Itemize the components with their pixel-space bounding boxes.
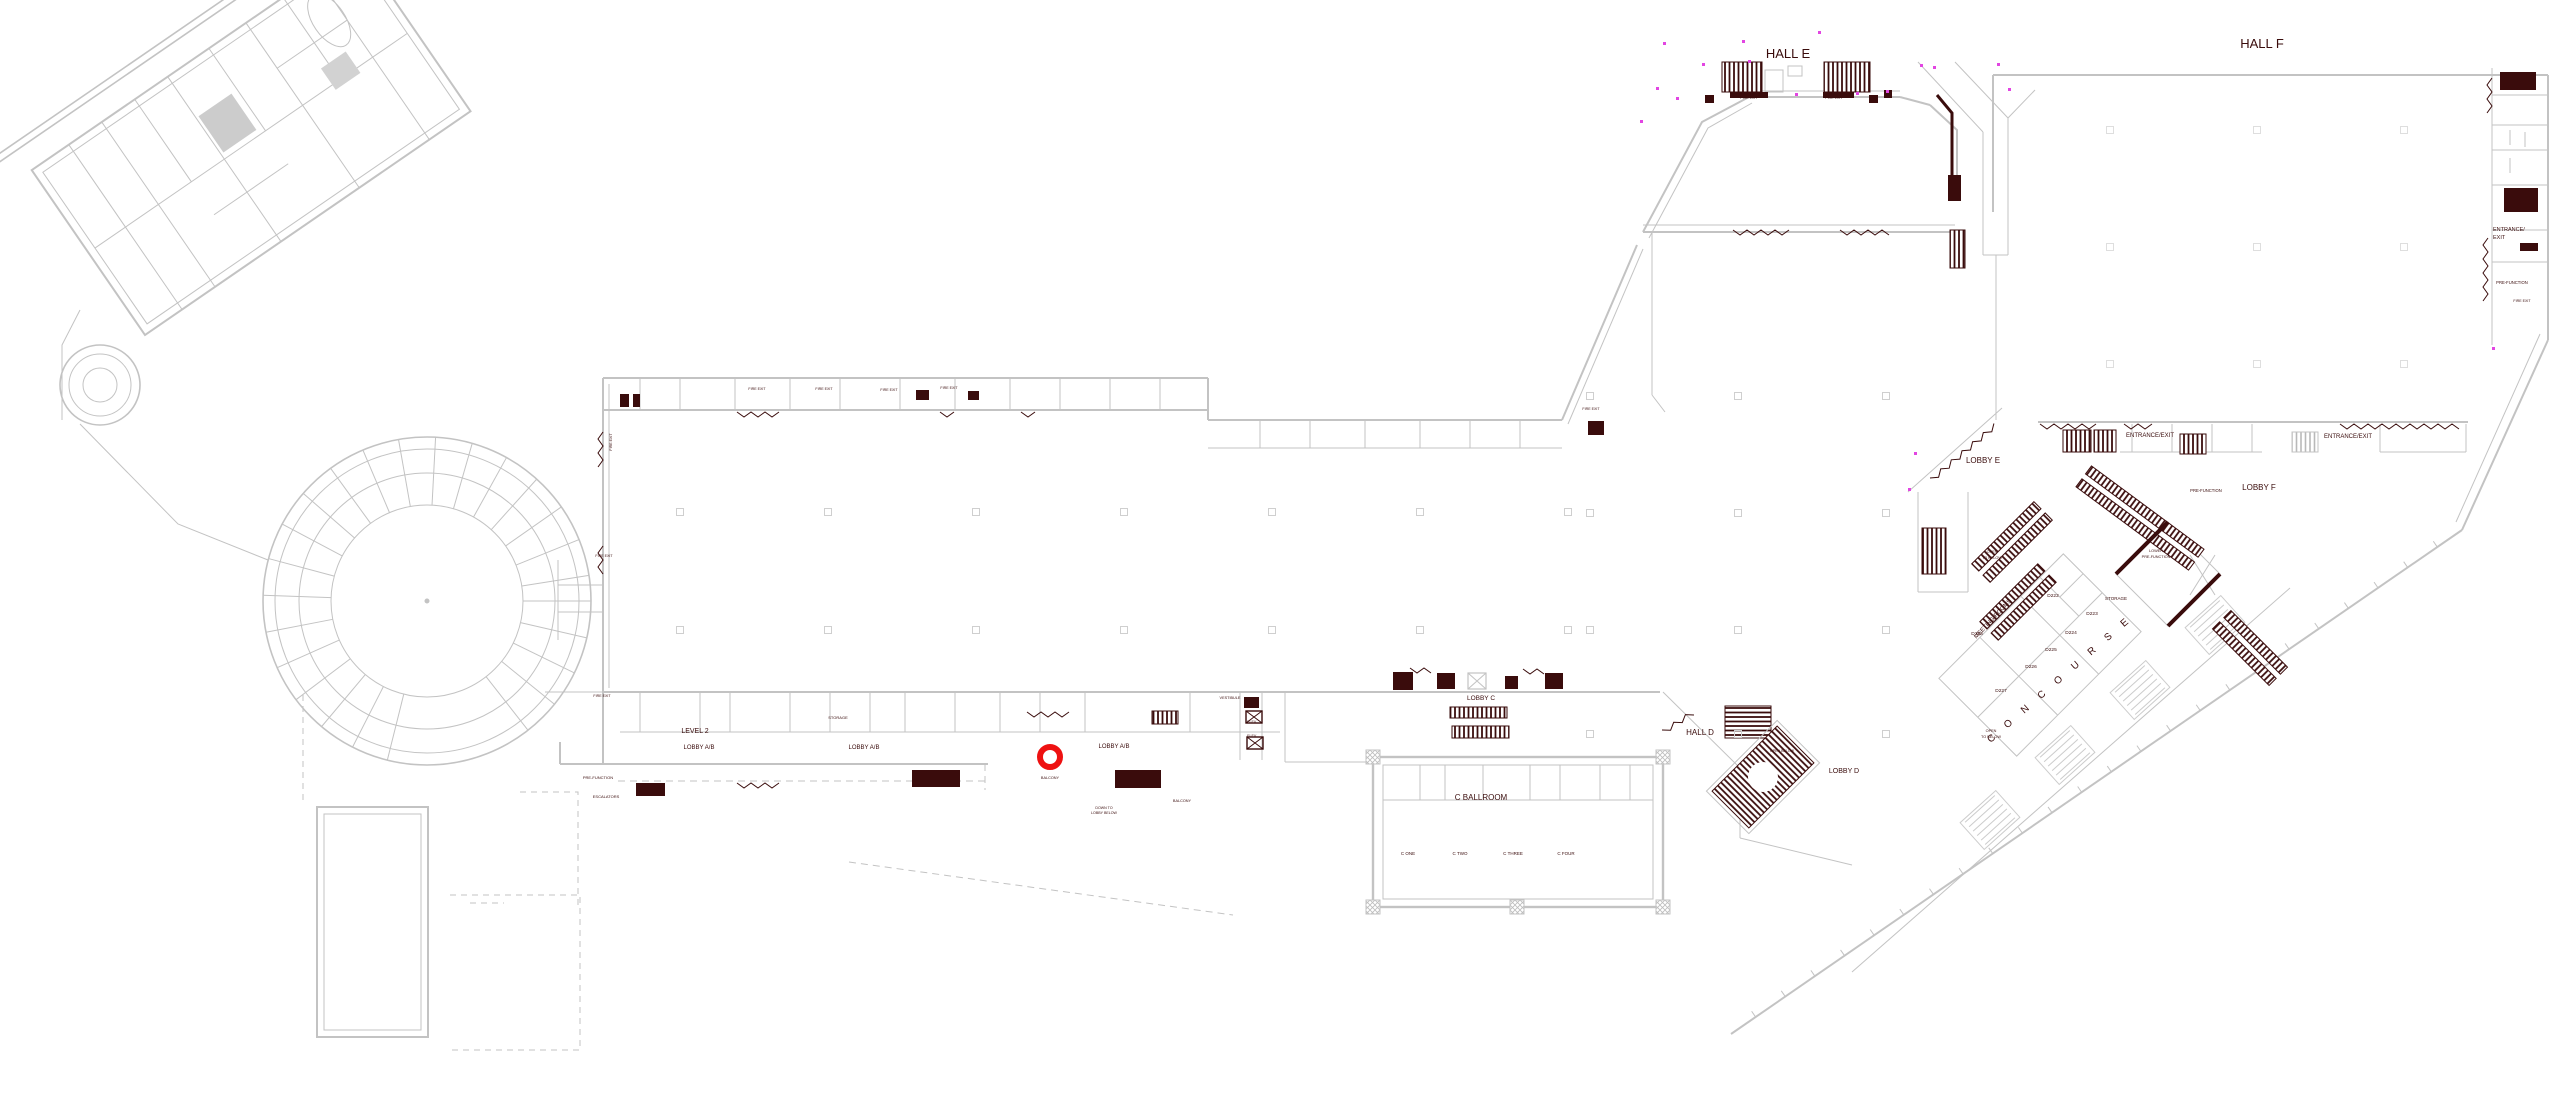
label-storage-2: STORAGE — [828, 715, 848, 720]
label-hall-f: HALL F — [2240, 36, 2284, 51]
survey-mark — [2492, 347, 2495, 350]
label-open-to-below-1b: TO BELOW — [1982, 556, 2002, 560]
label-lower-pre-function-a: LOWER — [2149, 549, 2163, 553]
label-room-d223: D223 — [2086, 611, 2098, 617]
labels-layer: HALL EHALL FLOBBY ELOBBY FENTRANCE/EXITE… — [583, 36, 2532, 856]
label-c-three: C THREE — [1503, 851, 1523, 856]
label-fire-exit-7: FIRE EXIT — [595, 554, 613, 558]
column-marker — [973, 627, 980, 634]
label-hall-e: HALL E — [1766, 46, 1811, 61]
label-pre-function-2: PRE-FUNCTION — [2496, 280, 2528, 285]
label-open-to-below-1a: OPEN — [1987, 550, 1998, 554]
column-marker — [1417, 627, 1424, 634]
survey-mark — [1908, 488, 1911, 491]
label-room-d226: D226 — [2025, 664, 2037, 670]
label-pre-function-1: PRE-FUNCTION — [2190, 488, 2222, 493]
survey-mark — [1795, 93, 1798, 96]
column-marker — [1883, 627, 1890, 634]
upper-left-building — [0, 0, 475, 349]
round-tower — [60, 310, 268, 560]
circular-arena — [263, 437, 591, 765]
label-entrance-exit-1: ENTRANCE/EXIT — [2126, 433, 2174, 439]
survey-mark — [1656, 87, 1659, 90]
column-marker — [1565, 627, 1572, 634]
label-lobby-e: LOBBY E — [1966, 456, 2000, 465]
column-marker — [1735, 393, 1742, 400]
label-balcony-1: BALCONY — [1041, 776, 1060, 780]
label-c-four: C FOUR — [1557, 851, 1575, 856]
column-marker — [1269, 627, 1276, 634]
label-entrance-exit-3a: ENTRANCE/ — [2493, 227, 2525, 233]
column-marker — [1269, 509, 1276, 516]
label-down-to-lobby-b: LOBBY BELOW — [1091, 811, 1118, 815]
survey-mark — [1886, 90, 1889, 93]
column-marker — [1587, 393, 1594, 400]
red-circle-annotation[interactable] — [1040, 747, 1060, 767]
label-elev-1: ELEV. — [1247, 720, 1257, 724]
column-marker — [1735, 627, 1742, 634]
label-fire-exit-5: FIRE EXIT — [880, 388, 898, 392]
label-lobby-d: LOBBY D — [1829, 768, 1859, 775]
label-balcony-2: BALCONY — [1173, 799, 1192, 803]
column-marker — [1121, 509, 1128, 516]
label-elev-2: ELEV. — [1247, 734, 1257, 738]
label-c-two: C TWO — [1453, 851, 1468, 856]
label-c-ballroom: C BALLROOM — [1455, 793, 1508, 802]
survey-mark — [1933, 66, 1936, 69]
label-down-to-lobby-a: DOWN TO — [1095, 806, 1112, 810]
label-entrance-exit-3b: EXIT — [2493, 235, 2506, 241]
column-marker — [2254, 244, 2261, 251]
c-ballroom-room — [1366, 750, 1670, 914]
label-fire-exit-9: FIRE EXIT — [1582, 407, 1600, 411]
survey-mark — [1914, 452, 1917, 455]
label-pre-function-3: PRE-FUNCTION — [583, 775, 613, 780]
label-lower-pre-function-b: PRE-FUNCTION — [2142, 555, 2171, 559]
column-marker — [2107, 244, 2114, 251]
column-marker — [1417, 509, 1424, 516]
survey-mark — [1640, 120, 1643, 123]
label-vestibule: VESTIBULE — [1220, 696, 1241, 700]
label-lobby-c: LOBBY C — [1467, 695, 1495, 702]
hall-e-structure — [1643, 62, 2035, 420]
column-marker — [1735, 510, 1742, 517]
column-marker — [1587, 627, 1594, 634]
label-room-d224: D224 — [2065, 630, 2077, 636]
floor-plan-canvas: HALL EHALL FLOBBY ELOBBY FENTRANCE/EXITE… — [0, 0, 2560, 1093]
label-escalators: ESCALATORS — [593, 794, 620, 799]
bottom-left-building — [303, 695, 580, 1050]
label-fire-exit-1: FIRE EXIT — [1740, 96, 1758, 100]
survey-mark — [1676, 97, 1679, 100]
column-marker — [973, 509, 980, 516]
label-storage-1: STORAGE — [2105, 596, 2127, 601]
survey-mark — [1702, 63, 1705, 66]
label-fire-exit-10: FIRE EXIT — [609, 433, 613, 451]
column-marker — [2107, 361, 2114, 368]
label-fire-exit-2: FIRE EXIT — [1825, 96, 1843, 100]
survey-mark — [1748, 60, 1751, 63]
label-room-d222: D222 — [2047, 593, 2059, 599]
label-fire-exit-4: FIRE EXIT — [815, 387, 833, 391]
column-marker — [2401, 244, 2408, 251]
label-fire-exit-3: FIRE EXIT — [748, 387, 766, 391]
label-fire-exit-6: FIRE EXIT — [940, 386, 958, 390]
column-marker — [2254, 127, 2261, 134]
label-lobby-ab-1: LOBBY A/B — [684, 745, 715, 751]
column-marker — [1883, 731, 1890, 738]
column-marker — [1587, 510, 1594, 517]
label-level-2: LEVEL 2 — [681, 728, 708, 735]
label-open-below: OPEN BELOW — [1770, 749, 1795, 753]
column-marker — [1121, 627, 1128, 634]
survey-mark — [1742, 40, 1745, 43]
column-marker — [2401, 127, 2408, 134]
stairs-doors-layer — [620, 62, 2538, 834]
column-marker — [825, 509, 832, 516]
column-marker — [677, 627, 684, 634]
survey-mark — [1856, 92, 1859, 95]
label-lobby-ab-3: LOBBY A/B — [1099, 744, 1130, 750]
column-marker — [677, 509, 684, 516]
column-marker — [825, 627, 832, 634]
survey-mark — [1663, 42, 1666, 45]
label-lobby-ab-2: LOBBY A/B — [849, 745, 880, 751]
label-room-d228: D228 — [1971, 631, 1983, 637]
survey-mark — [1997, 63, 2000, 66]
label-room-d225: D225 — [2045, 647, 2057, 653]
column-marker — [2107, 127, 2114, 134]
label-hall-d: HALL D — [1686, 728, 1714, 737]
label-concourse: C O N C O U R S E — [1985, 613, 2135, 745]
survey-mark — [2008, 88, 2011, 91]
column-marker — [1883, 393, 1890, 400]
survey-mark — [1818, 31, 1821, 34]
column-marker — [1587, 731, 1594, 738]
label-room-d227: D227 — [1995, 688, 2007, 694]
column-marker — [2254, 361, 2261, 368]
column-marker — [1883, 510, 1890, 517]
label-entrance-exit-2: ENTRANCE/EXIT — [2324, 434, 2372, 440]
survey-mark — [1920, 64, 1923, 67]
label-lobby-f: LOBBY F — [2242, 483, 2276, 492]
label-fire-exit-11: FIRE EXIT — [2513, 299, 2531, 303]
label-c-one: C ONE — [1401, 851, 1415, 856]
label-fire-exit-8: FIRE EXIT — [593, 694, 611, 698]
floor-plan-page: HALL EHALL FLOBBY ELOBBY FENTRANCE/EXITE… — [0, 0, 2560, 1093]
column-marker — [2401, 361, 2408, 368]
column-marker — [1565, 509, 1572, 516]
